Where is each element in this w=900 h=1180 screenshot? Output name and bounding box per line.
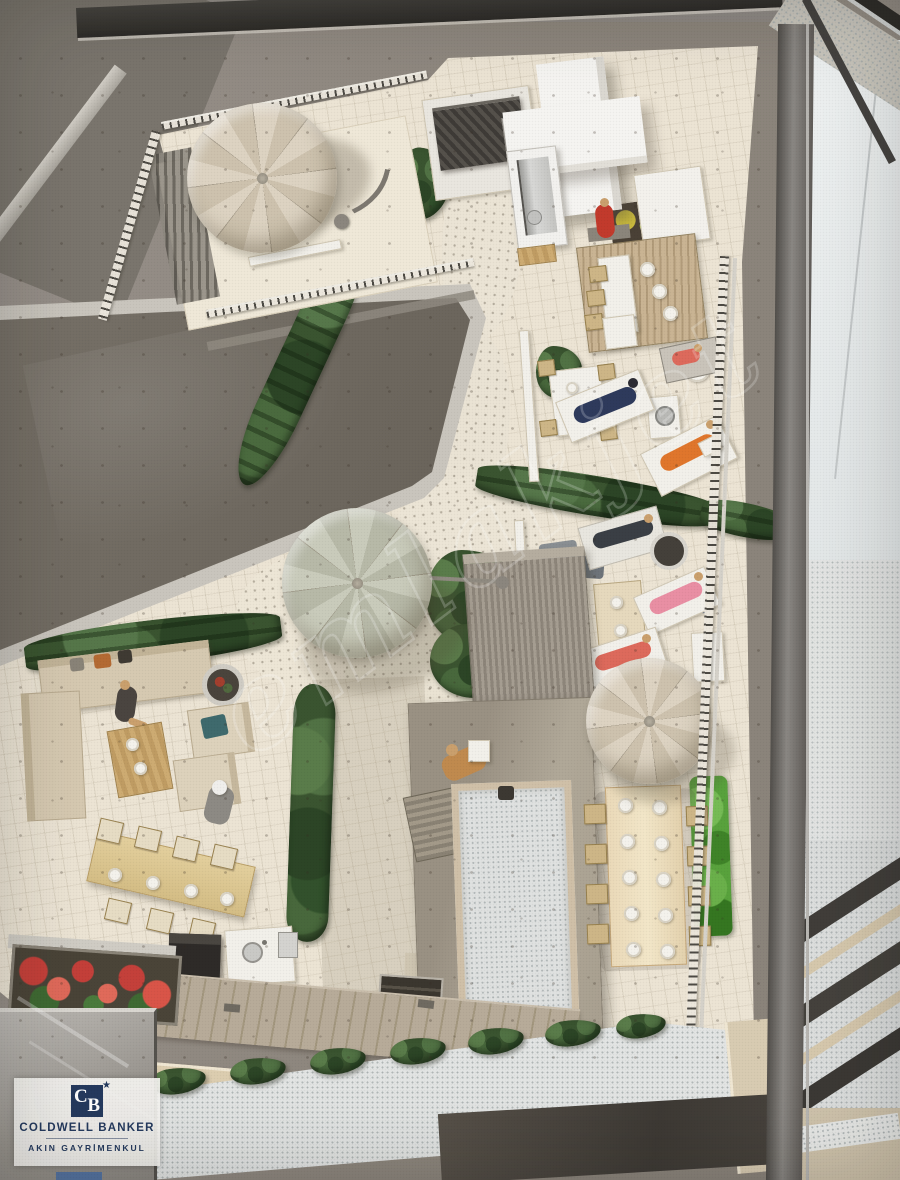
plate bbox=[654, 836, 669, 851]
small-dark-object bbox=[498, 786, 514, 800]
parasol-base bbox=[334, 214, 349, 229]
pergola-chair bbox=[588, 265, 608, 283]
stool bbox=[640, 262, 655, 277]
coffee-table bbox=[107, 722, 174, 799]
parasol-cream-lower bbox=[586, 658, 712, 784]
agency-subtitle: AKIN GAYRİMENKUL bbox=[14, 1143, 160, 1153]
figure-head bbox=[694, 344, 702, 352]
sofa-left bbox=[21, 691, 87, 822]
brand-name: COLDWELL BANKER bbox=[14, 1122, 160, 1134]
plate bbox=[566, 382, 578, 394]
stool bbox=[652, 284, 667, 299]
cb-monogram-square: C B bbox=[71, 1085, 103, 1117]
faucet bbox=[262, 940, 267, 945]
pergola-chair bbox=[584, 313, 604, 331]
plate bbox=[626, 942, 641, 957]
logo-divider bbox=[46, 1138, 128, 1139]
blue-sticker-sliver bbox=[56, 1172, 102, 1180]
figure-head-dark bbox=[628, 378, 638, 388]
figure-head bbox=[446, 744, 458, 756]
case-corner-highlight bbox=[806, 24, 809, 1180]
plate bbox=[624, 906, 639, 921]
parasol-base bbox=[496, 576, 509, 589]
white-hat bbox=[212, 780, 227, 795]
monogram-b: B bbox=[87, 1095, 100, 1117]
fire-pit bbox=[202, 664, 244, 706]
plate bbox=[620, 834, 635, 849]
plate bbox=[146, 876, 160, 890]
plate bbox=[184, 884, 198, 898]
patio-chair bbox=[537, 359, 556, 377]
figure-head bbox=[600, 198, 609, 207]
plate bbox=[220, 892, 234, 906]
figure-head bbox=[642, 634, 651, 643]
dining-chair bbox=[586, 884, 609, 905]
small-core-block bbox=[462, 546, 595, 719]
plate bbox=[610, 596, 623, 609]
model-photo: emlakjet C B ★ COLDWELL BANKER AKIN GAYR… bbox=[0, 0, 900, 1180]
plate bbox=[618, 798, 633, 813]
sink bbox=[242, 942, 263, 963]
facade-upper bbox=[800, 560, 900, 845]
counter-appliance bbox=[278, 932, 298, 958]
dining-chair bbox=[587, 924, 610, 945]
dining-table-long bbox=[605, 785, 687, 968]
plate bbox=[126, 738, 139, 751]
pillow-dark bbox=[117, 649, 132, 664]
figure-head bbox=[644, 514, 653, 523]
deck-drain bbox=[224, 1003, 241, 1012]
plate bbox=[660, 944, 675, 959]
agency-logo: C B ★ COLDWELL BANKER AKIN GAYRİMENKUL bbox=[14, 1078, 160, 1166]
hedge-vertical-strip bbox=[286, 683, 337, 942]
pergola-chair bbox=[586, 289, 606, 307]
star-icon: ★ bbox=[102, 1080, 111, 1091]
pillow-gray bbox=[69, 657, 84, 672]
plate bbox=[656, 872, 671, 887]
small-table bbox=[468, 740, 490, 762]
facade-block bbox=[794, 840, 900, 1112]
small-table bbox=[602, 314, 638, 350]
plate bbox=[614, 624, 627, 637]
monogram-c: C bbox=[74, 1086, 88, 1108]
fridge-dial bbox=[527, 210, 542, 225]
plate bbox=[658, 908, 673, 923]
dining-chair bbox=[585, 844, 608, 865]
round-planter bbox=[650, 532, 688, 570]
pillow-rust bbox=[93, 653, 112, 669]
plate bbox=[134, 762, 147, 775]
stool bbox=[663, 306, 678, 321]
plate bbox=[108, 868, 122, 882]
plate bbox=[622, 870, 637, 885]
dining-chair bbox=[584, 804, 607, 825]
parasol-sage bbox=[282, 508, 432, 658]
patio-chair bbox=[539, 419, 558, 437]
figure-head bbox=[694, 572, 703, 581]
figure-head bbox=[120, 680, 130, 690]
machine-door bbox=[655, 406, 675, 426]
